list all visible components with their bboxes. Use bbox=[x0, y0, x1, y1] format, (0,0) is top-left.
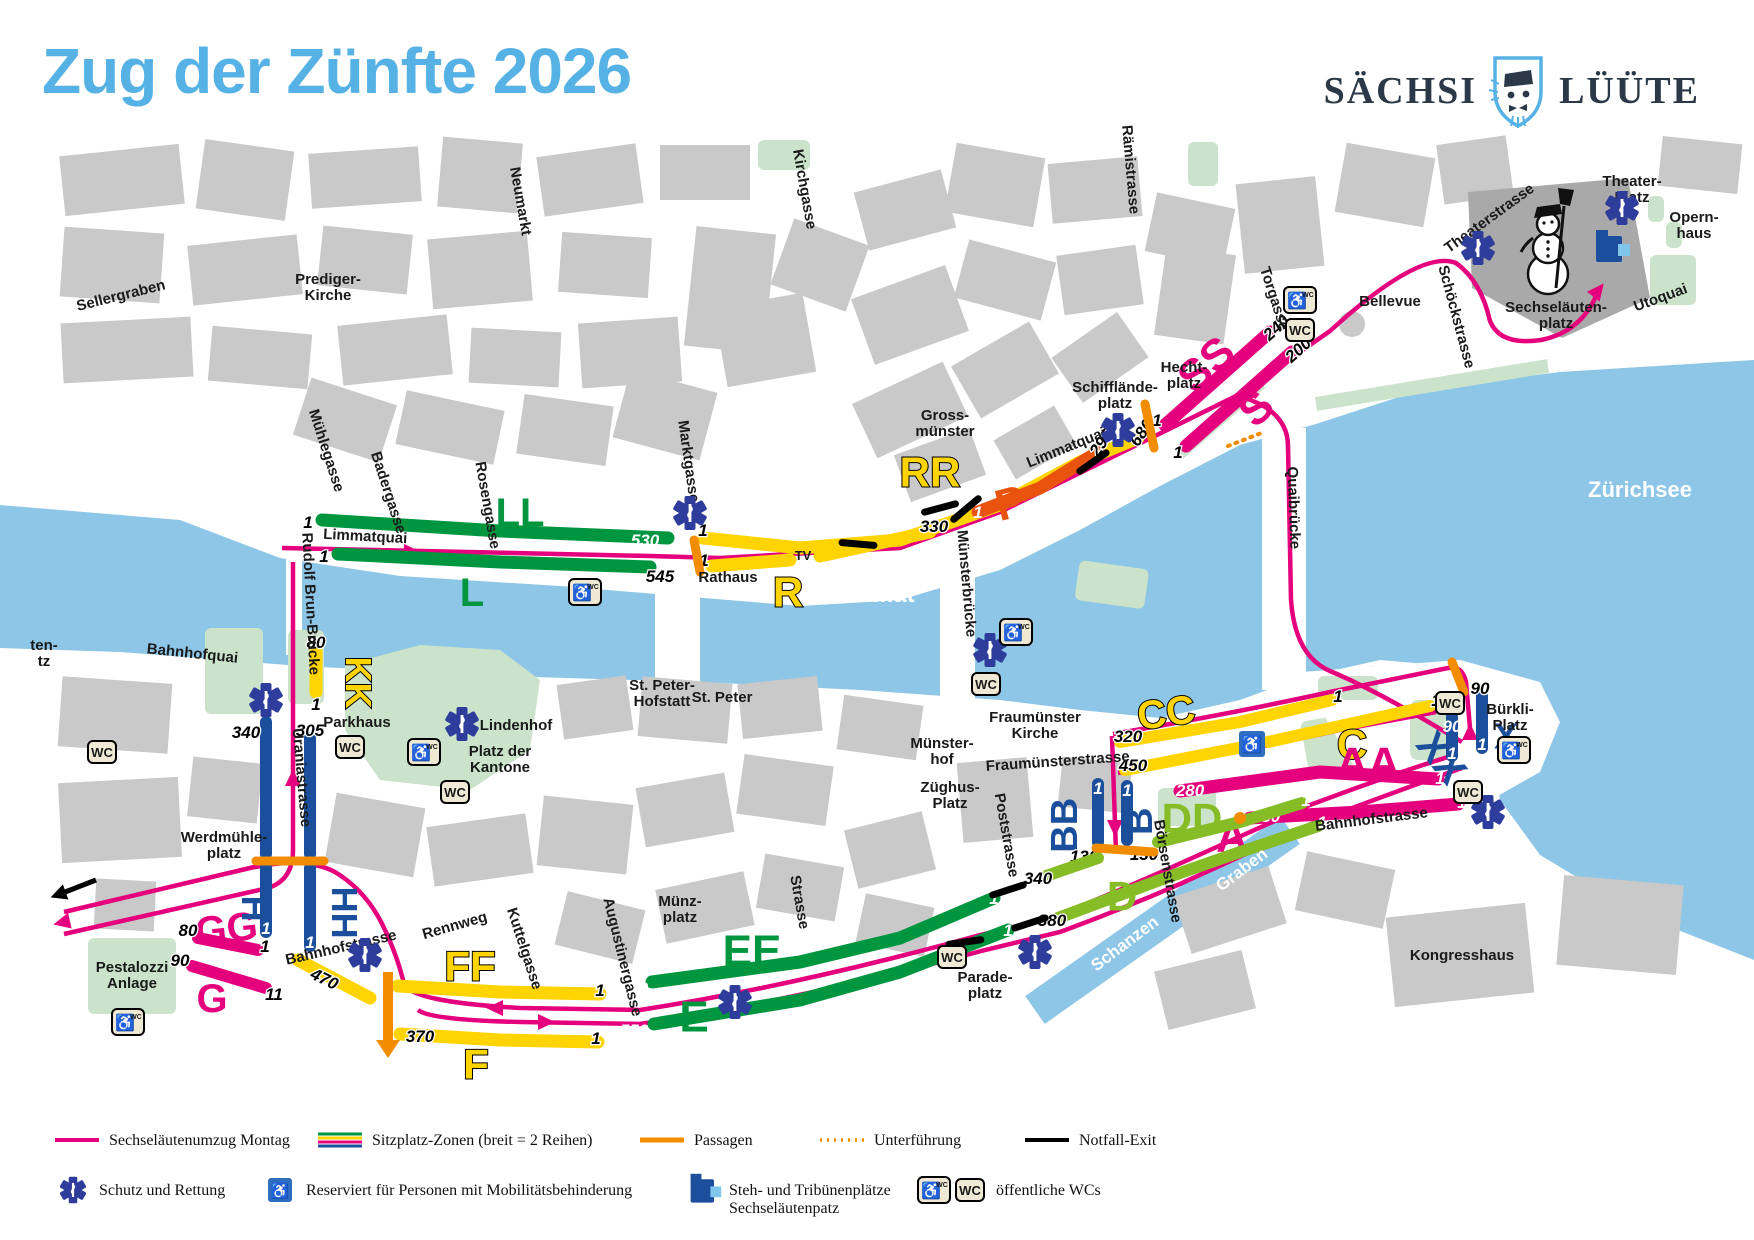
wc-icon-text: WC bbox=[91, 745, 113, 760]
zone-label-G: G bbox=[196, 977, 227, 1021]
wc-small-text: WC bbox=[1516, 742, 1528, 749]
building-block bbox=[844, 811, 936, 889]
place-label: platz bbox=[1539, 315, 1573, 332]
place-label: Fraumünster bbox=[989, 709, 1081, 726]
place-label: Anlage bbox=[107, 975, 157, 992]
wc-icon-text: WC bbox=[975, 677, 997, 692]
building-block bbox=[427, 231, 533, 309]
building-block bbox=[208, 326, 312, 390]
wheelchair-glyph: ♿ bbox=[1241, 734, 1262, 754]
zone-number-XX: 90 bbox=[1443, 717, 1462, 736]
wheelchair-wc-icon: ♿WC bbox=[1284, 287, 1316, 313]
wc-icon: WC bbox=[88, 741, 116, 763]
zone-number-E: 1 bbox=[1003, 921, 1012, 940]
place-label: Platz der bbox=[469, 743, 532, 760]
building-block bbox=[1236, 176, 1325, 274]
logo-text-left: SÄCHSI bbox=[1324, 69, 1478, 113]
wc-icon: WC bbox=[1454, 781, 1482, 803]
place-label: St. Peter- bbox=[629, 677, 695, 694]
zone-number-L: 545 bbox=[646, 567, 675, 586]
passage-line bbox=[694, 540, 700, 572]
building-block bbox=[851, 265, 969, 365]
zone-label-LL: LL bbox=[496, 491, 545, 535]
zone-label-EE: EE bbox=[723, 926, 782, 975]
legend-entry: Passagen bbox=[640, 1132, 753, 1149]
map-page: Zug der Zünfte 2026 SÄCHSI LÜÜTE LL1530L… bbox=[0, 0, 1754, 1240]
building-block bbox=[536, 143, 643, 216]
building-block bbox=[61, 317, 194, 384]
zone-number-E: 550 bbox=[620, 1021, 649, 1040]
building-block bbox=[951, 322, 1059, 419]
wc-small-text: WC bbox=[130, 1014, 142, 1021]
wheelchair-reserved-icon: ♿ bbox=[1239, 731, 1265, 757]
wc-small-text: WC bbox=[587, 584, 599, 591]
place-label: ten- bbox=[30, 637, 58, 654]
zone-number-X: 1 bbox=[1477, 735, 1486, 754]
legend-label: Reserviert für Personen mit Mobilitätsbe… bbox=[306, 1182, 632, 1199]
building-block bbox=[1556, 875, 1683, 975]
building-block bbox=[714, 293, 817, 387]
wc-icon-text: WC bbox=[1439, 696, 1461, 711]
legend-star-icon bbox=[59, 1177, 86, 1204]
building-block bbox=[337, 314, 453, 385]
star-of-life-icon bbox=[673, 496, 708, 530]
place-label: Gross- bbox=[921, 407, 969, 424]
map-legend: Sechseläutenumzug MontagSitzplatz-Zonen … bbox=[0, 1118, 1754, 1240]
building-block bbox=[1658, 136, 1743, 194]
street-label: TV bbox=[795, 548, 812, 563]
zone-number-G: 11 bbox=[265, 985, 283, 1004]
zone-label-RR: RR bbox=[900, 449, 961, 496]
zone-label-KK: KK bbox=[338, 657, 379, 709]
emergency-exit-mark bbox=[993, 885, 1023, 895]
wheelchair-wc-icon: ♿WC bbox=[112, 1009, 144, 1035]
wc-small-text: WC bbox=[426, 744, 438, 751]
wc-icon: WC bbox=[956, 1179, 984, 1201]
place-label: Züghus- bbox=[920, 779, 979, 796]
place-label: Münster- bbox=[910, 735, 973, 752]
zone-F: F3701 bbox=[400, 1027, 601, 1088]
zone-number-DD: 1 bbox=[1301, 791, 1310, 810]
zone-number-H: 1 bbox=[261, 919, 270, 938]
building-block bbox=[325, 793, 426, 878]
wc-icon-text: WC bbox=[959, 1183, 981, 1198]
place-label: Prediger- bbox=[295, 271, 361, 288]
wc-icon-text: WC bbox=[444, 785, 466, 800]
legend-label: Passagen bbox=[694, 1132, 753, 1149]
route-arrow bbox=[486, 1000, 503, 1016]
zone-label-BB: BB bbox=[1044, 798, 1086, 853]
zone-number-BB: 1 bbox=[1093, 779, 1102, 798]
legend-label: Sechseläutenpatz bbox=[729, 1200, 839, 1217]
wc-small-text: WC bbox=[1302, 292, 1314, 299]
place-label: Platz bbox=[1492, 717, 1527, 734]
building-block bbox=[59, 144, 185, 216]
place-label: platz bbox=[1167, 375, 1201, 392]
building-block bbox=[58, 777, 182, 863]
legend-label: Sechseläutenumzug Montag bbox=[109, 1132, 290, 1149]
wheelchair-wc-icon: ♿WC bbox=[1000, 619, 1032, 645]
building-block bbox=[660, 145, 750, 200]
zone-number-CC: 320 bbox=[1114, 727, 1143, 746]
wheelchair-wc-icon: ♿WC bbox=[408, 739, 440, 765]
zone-G: G9011 bbox=[171, 951, 283, 1021]
wc-icon: WC bbox=[1286, 319, 1314, 341]
place-label: Münz- bbox=[658, 893, 701, 910]
wc-icon: WC bbox=[1436, 692, 1464, 714]
zone-number-XX: 1 bbox=[1447, 744, 1456, 763]
zone-number-KK: 1 bbox=[311, 695, 320, 714]
map-label: ♿ bbox=[271, 1182, 290, 1200]
zone-number-X: 90 bbox=[1471, 679, 1490, 698]
legend-entry: ♿Reserviert für Personen mit Mobilitätsb… bbox=[268, 1178, 632, 1202]
zone-number-F: 1 bbox=[591, 1029, 600, 1048]
building-block bbox=[854, 169, 956, 250]
place-label: Parade- bbox=[957, 969, 1012, 986]
building-block bbox=[1056, 245, 1144, 316]
zone-number-L: 1 bbox=[319, 547, 328, 566]
place-label: platz bbox=[207, 845, 241, 862]
place-label: Schifflände- bbox=[1072, 379, 1158, 396]
water-label: Limmat bbox=[829, 581, 914, 608]
building-block bbox=[187, 757, 263, 824]
water-label: Zürichsee bbox=[1588, 477, 1692, 502]
place-label: Hecht- bbox=[1161, 359, 1208, 376]
zone-label-F: F bbox=[463, 1041, 489, 1088]
zone-number-FF: 1 bbox=[595, 981, 604, 1000]
building-block bbox=[736, 754, 833, 826]
zone-number-GG: 1 bbox=[260, 937, 269, 956]
building-block bbox=[187, 234, 303, 305]
building-block bbox=[945, 143, 1046, 228]
zone-label-FF: FF bbox=[444, 943, 495, 990]
legend-entry: ♿WCWCöffentliche WCs bbox=[918, 1177, 1101, 1203]
legend-label: Schutz und Rettung bbox=[99, 1182, 225, 1199]
wc-icon-text: WC bbox=[339, 740, 361, 755]
passage-line bbox=[1096, 848, 1154, 852]
building-block bbox=[537, 795, 634, 874]
legend-label: Unterführung bbox=[874, 1132, 961, 1149]
star-of-life-icon bbox=[1018, 935, 1053, 969]
emergency-exit-mark bbox=[842, 543, 874, 546]
star-of-life-icon bbox=[348, 938, 383, 972]
place-label: Kirche bbox=[1012, 725, 1059, 742]
zone-bar-DD bbox=[1046, 858, 1098, 876]
legend-label: öffentliche WCs bbox=[996, 1182, 1101, 1199]
zone-number-G: 90 bbox=[171, 951, 190, 970]
place-label: Werdmühle- bbox=[181, 829, 267, 846]
building-block bbox=[1154, 950, 1256, 1030]
parade-map: LL1530L1545RR1680R1330P1295SS1240S1200KK… bbox=[0, 118, 1754, 1218]
street-label: Rennweg bbox=[420, 908, 489, 943]
zone-label-P: P bbox=[990, 476, 1031, 531]
street-label: Bellevue bbox=[1359, 293, 1421, 310]
passage-dot bbox=[1234, 812, 1246, 824]
route-arrow bbox=[538, 1014, 555, 1030]
street-label: St. Peter bbox=[692, 689, 753, 706]
zone-bar-FF bbox=[398, 986, 600, 994]
street-label: Quaibrücke bbox=[1284, 466, 1304, 549]
wc-icon: WC bbox=[938, 946, 966, 968]
stands-tribune-icon bbox=[691, 1174, 722, 1203]
wheelchair-wc-icon: ♿WC bbox=[1498, 737, 1530, 763]
zone-label-R: R bbox=[773, 569, 803, 616]
zone-number-F: 370 bbox=[406, 1027, 435, 1046]
legend-entry: Sechseläutenumzug Montag bbox=[55, 1132, 290, 1149]
street-label: Kongresshaus bbox=[1410, 947, 1514, 964]
street-label: Kuttelgasse bbox=[503, 906, 545, 992]
place-label: Theater- bbox=[1602, 173, 1661, 190]
building-block bbox=[558, 232, 652, 298]
building-block bbox=[635, 773, 734, 848]
legend-entry: Notfall-Exit bbox=[1025, 1132, 1157, 1149]
zone-number-LL: 1 bbox=[303, 513, 312, 532]
zone-number-S: 1 bbox=[1173, 443, 1182, 462]
place-label: Kirche bbox=[305, 287, 352, 304]
place-label: Bürkli- bbox=[1486, 701, 1534, 718]
wc-small-text: WC bbox=[1018, 624, 1030, 631]
legend-label: Notfall-Exit bbox=[1079, 1132, 1157, 1149]
wheelchair-wc-icon: ♿WC bbox=[918, 1177, 950, 1203]
zone-number-B: 1 bbox=[1122, 781, 1131, 800]
legend-entry: Sitzplatz-Zonen (breit = 2 Reihen) bbox=[318, 1132, 593, 1149]
zone-label-HH: HH bbox=[324, 887, 365, 939]
place-label: haus bbox=[1676, 225, 1711, 242]
wc-small-text: WC bbox=[936, 1182, 948, 1189]
building-block bbox=[954, 239, 1056, 320]
zone-number-R: 330 bbox=[920, 517, 949, 536]
place-label: platz bbox=[968, 985, 1002, 1002]
zone-number-DD: 340 bbox=[1024, 869, 1053, 888]
building-block bbox=[196, 139, 295, 221]
wc-icon: WC bbox=[336, 736, 364, 758]
building-block bbox=[308, 146, 422, 209]
zone-label-H: H bbox=[234, 896, 275, 922]
street-label: Parkhaus bbox=[323, 714, 391, 731]
emergency-exit-mark bbox=[925, 504, 956, 512]
legend-label: Steh- und Tribünenplätze bbox=[729, 1182, 891, 1199]
place-label: Hofstatt bbox=[634, 693, 691, 710]
zone-number-GG: 80 bbox=[179, 921, 198, 940]
legend-entry: Steh- und TribünenplätzeSechseläutenpatz bbox=[691, 1174, 891, 1217]
wheelchair-wc-icon: ♿WC bbox=[569, 579, 601, 605]
logo-text-right: LÜÜTE bbox=[1559, 69, 1700, 113]
black-exit-arrowhead bbox=[48, 884, 69, 905]
building-block bbox=[469, 328, 562, 388]
wc-icon: WC bbox=[441, 781, 469, 803]
zone-number-AA: 1 bbox=[1435, 769, 1444, 788]
wc-icon-text: WC bbox=[941, 950, 963, 965]
building-block bbox=[557, 675, 634, 739]
legend-wheelchair-icon: ♿ bbox=[268, 1178, 292, 1202]
route-arrow bbox=[51, 913, 71, 932]
wc-icon-text: WC bbox=[1457, 785, 1479, 800]
zone-number-CC: 1 bbox=[1333, 687, 1342, 706]
building-block bbox=[1295, 851, 1396, 928]
building-block bbox=[426, 813, 533, 886]
zone-number-H: 340 bbox=[232, 723, 261, 742]
street-label: Limmatquai bbox=[323, 526, 408, 547]
legend-entry: Schutz und Rettung bbox=[59, 1177, 225, 1204]
zone-label-CC: CC bbox=[1135, 687, 1198, 739]
place-label: platz bbox=[663, 909, 697, 926]
passage-arrow-head bbox=[376, 1040, 400, 1058]
building-block bbox=[737, 676, 822, 739]
page-title: Zug der Zünfte 2026 bbox=[42, 34, 631, 108]
emergency-exit-mark bbox=[949, 940, 981, 944]
place-label: hof bbox=[930, 751, 954, 768]
building-block bbox=[1335, 143, 1436, 228]
street-label: Kirchgasse bbox=[789, 148, 820, 231]
building-block bbox=[395, 390, 504, 465]
street-label: Rathaus bbox=[698, 569, 757, 586]
zone-label-AA: AA bbox=[1336, 738, 1400, 787]
place-label: platz bbox=[1098, 395, 1132, 412]
zone-number-LL: 530 bbox=[631, 531, 660, 550]
zone-label-E: E bbox=[679, 992, 708, 1041]
place-label: Pestalozzi bbox=[96, 959, 169, 976]
wc-icon-text: WC bbox=[1289, 323, 1311, 338]
bellevue-circle bbox=[1339, 311, 1365, 337]
zone-label-DD: DD bbox=[1162, 795, 1223, 842]
building-block bbox=[612, 370, 717, 461]
building-block bbox=[1154, 246, 1236, 345]
zone-bar-R bbox=[712, 560, 790, 566]
place-label: tz bbox=[38, 653, 51, 670]
place-label: Platz bbox=[932, 795, 967, 812]
zone-label-L: L bbox=[460, 571, 484, 615]
place-label: Kantone bbox=[470, 759, 530, 776]
place-label: Sechseläuten- bbox=[1505, 299, 1607, 316]
legend-entry: Unterführung bbox=[820, 1132, 961, 1149]
zone-label-D: D bbox=[1107, 873, 1137, 920]
place-label: Opern- bbox=[1669, 209, 1718, 226]
building-block bbox=[516, 394, 613, 466]
star-of-life-icon bbox=[718, 985, 753, 1019]
place-label: münster bbox=[915, 423, 974, 440]
street-label: Lindenhof bbox=[480, 717, 553, 734]
wc-icon: WC bbox=[972, 673, 1000, 695]
legend-label: Sitzplatz-Zonen (breit = 2 Reihen) bbox=[372, 1132, 593, 1149]
